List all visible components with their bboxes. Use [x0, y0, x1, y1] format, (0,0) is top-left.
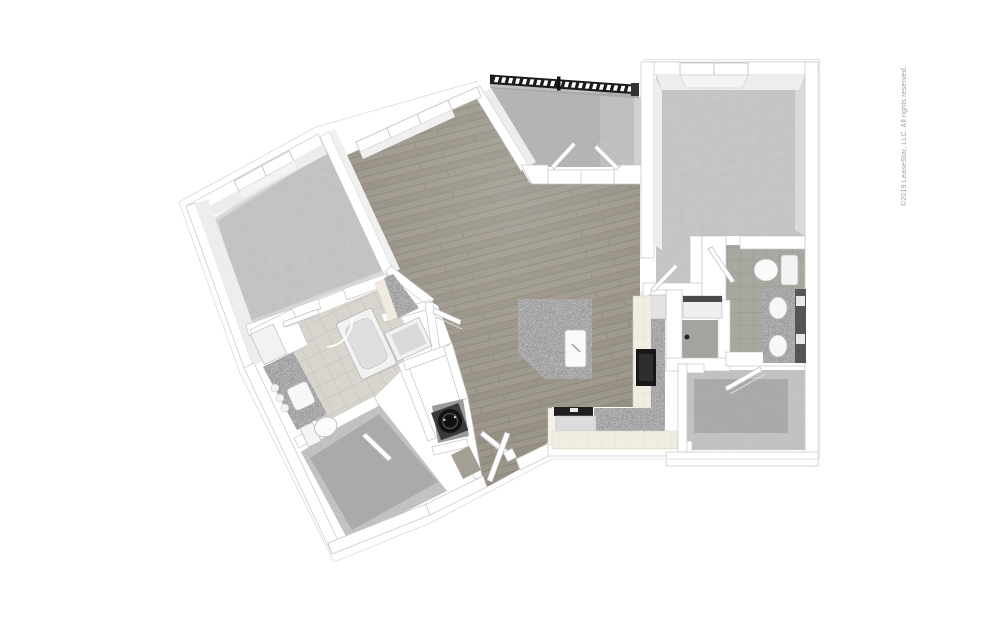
svg-text:©2019 LeaseStar, LLC. All righ: ©2019 LeaseStar, LLC. All rights reserve…: [899, 66, 908, 206]
